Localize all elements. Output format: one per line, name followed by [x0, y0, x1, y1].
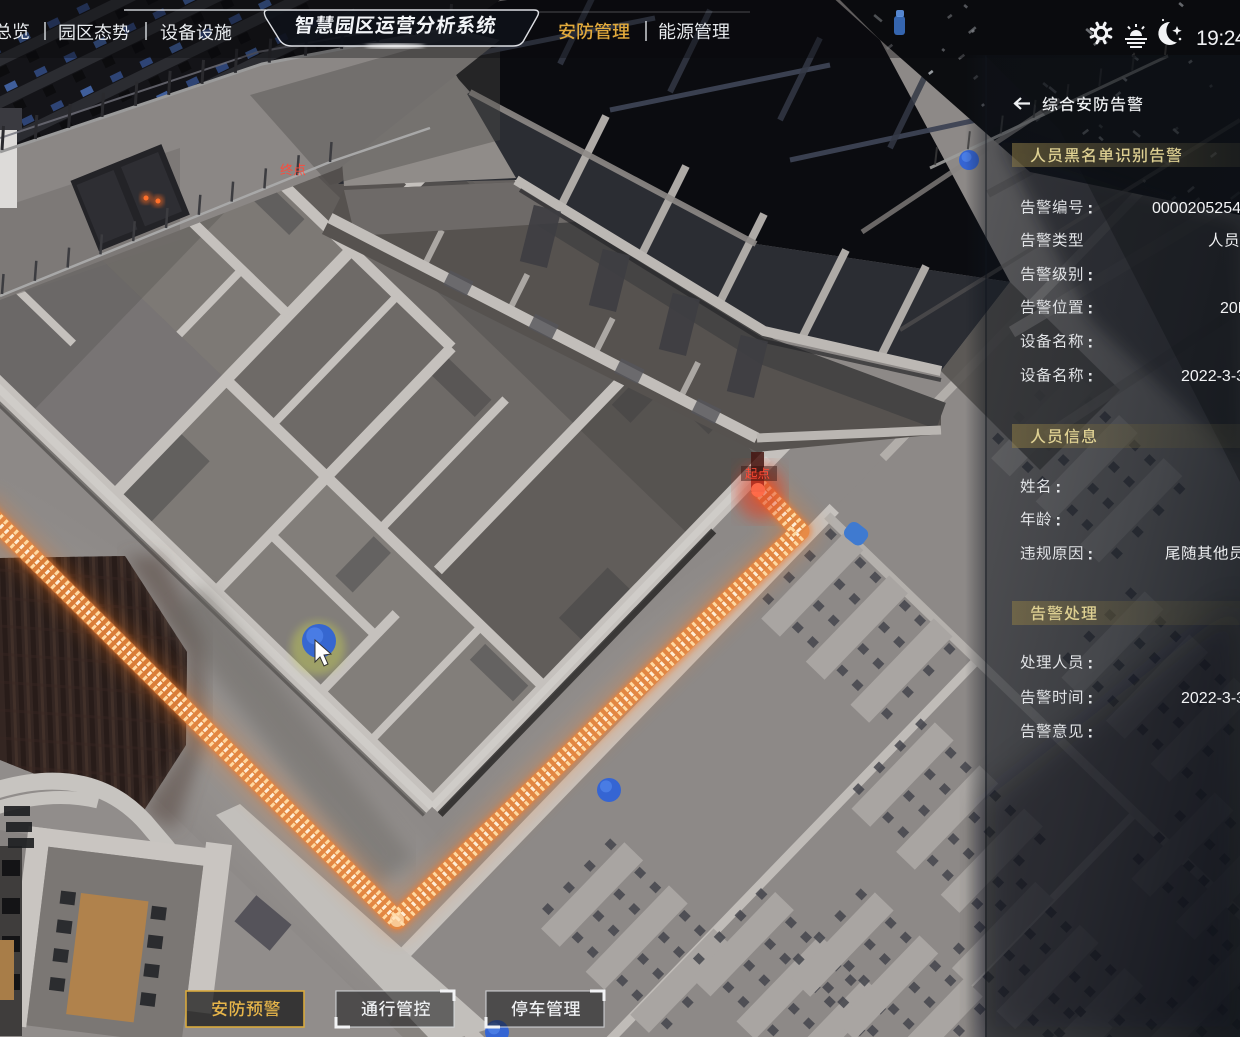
svg-text:2022-3-3: 2022-3-3 — [1181, 690, 1240, 707]
svg-text:2022-3-3: 2022-3-3 — [1181, 368, 1240, 385]
svg-text:000020525417: 000020525417 — [1152, 200, 1240, 217]
svg-text:20F: 20F — [1220, 300, 1240, 317]
svg-text:19:24: 19:24 — [1196, 27, 1240, 50]
